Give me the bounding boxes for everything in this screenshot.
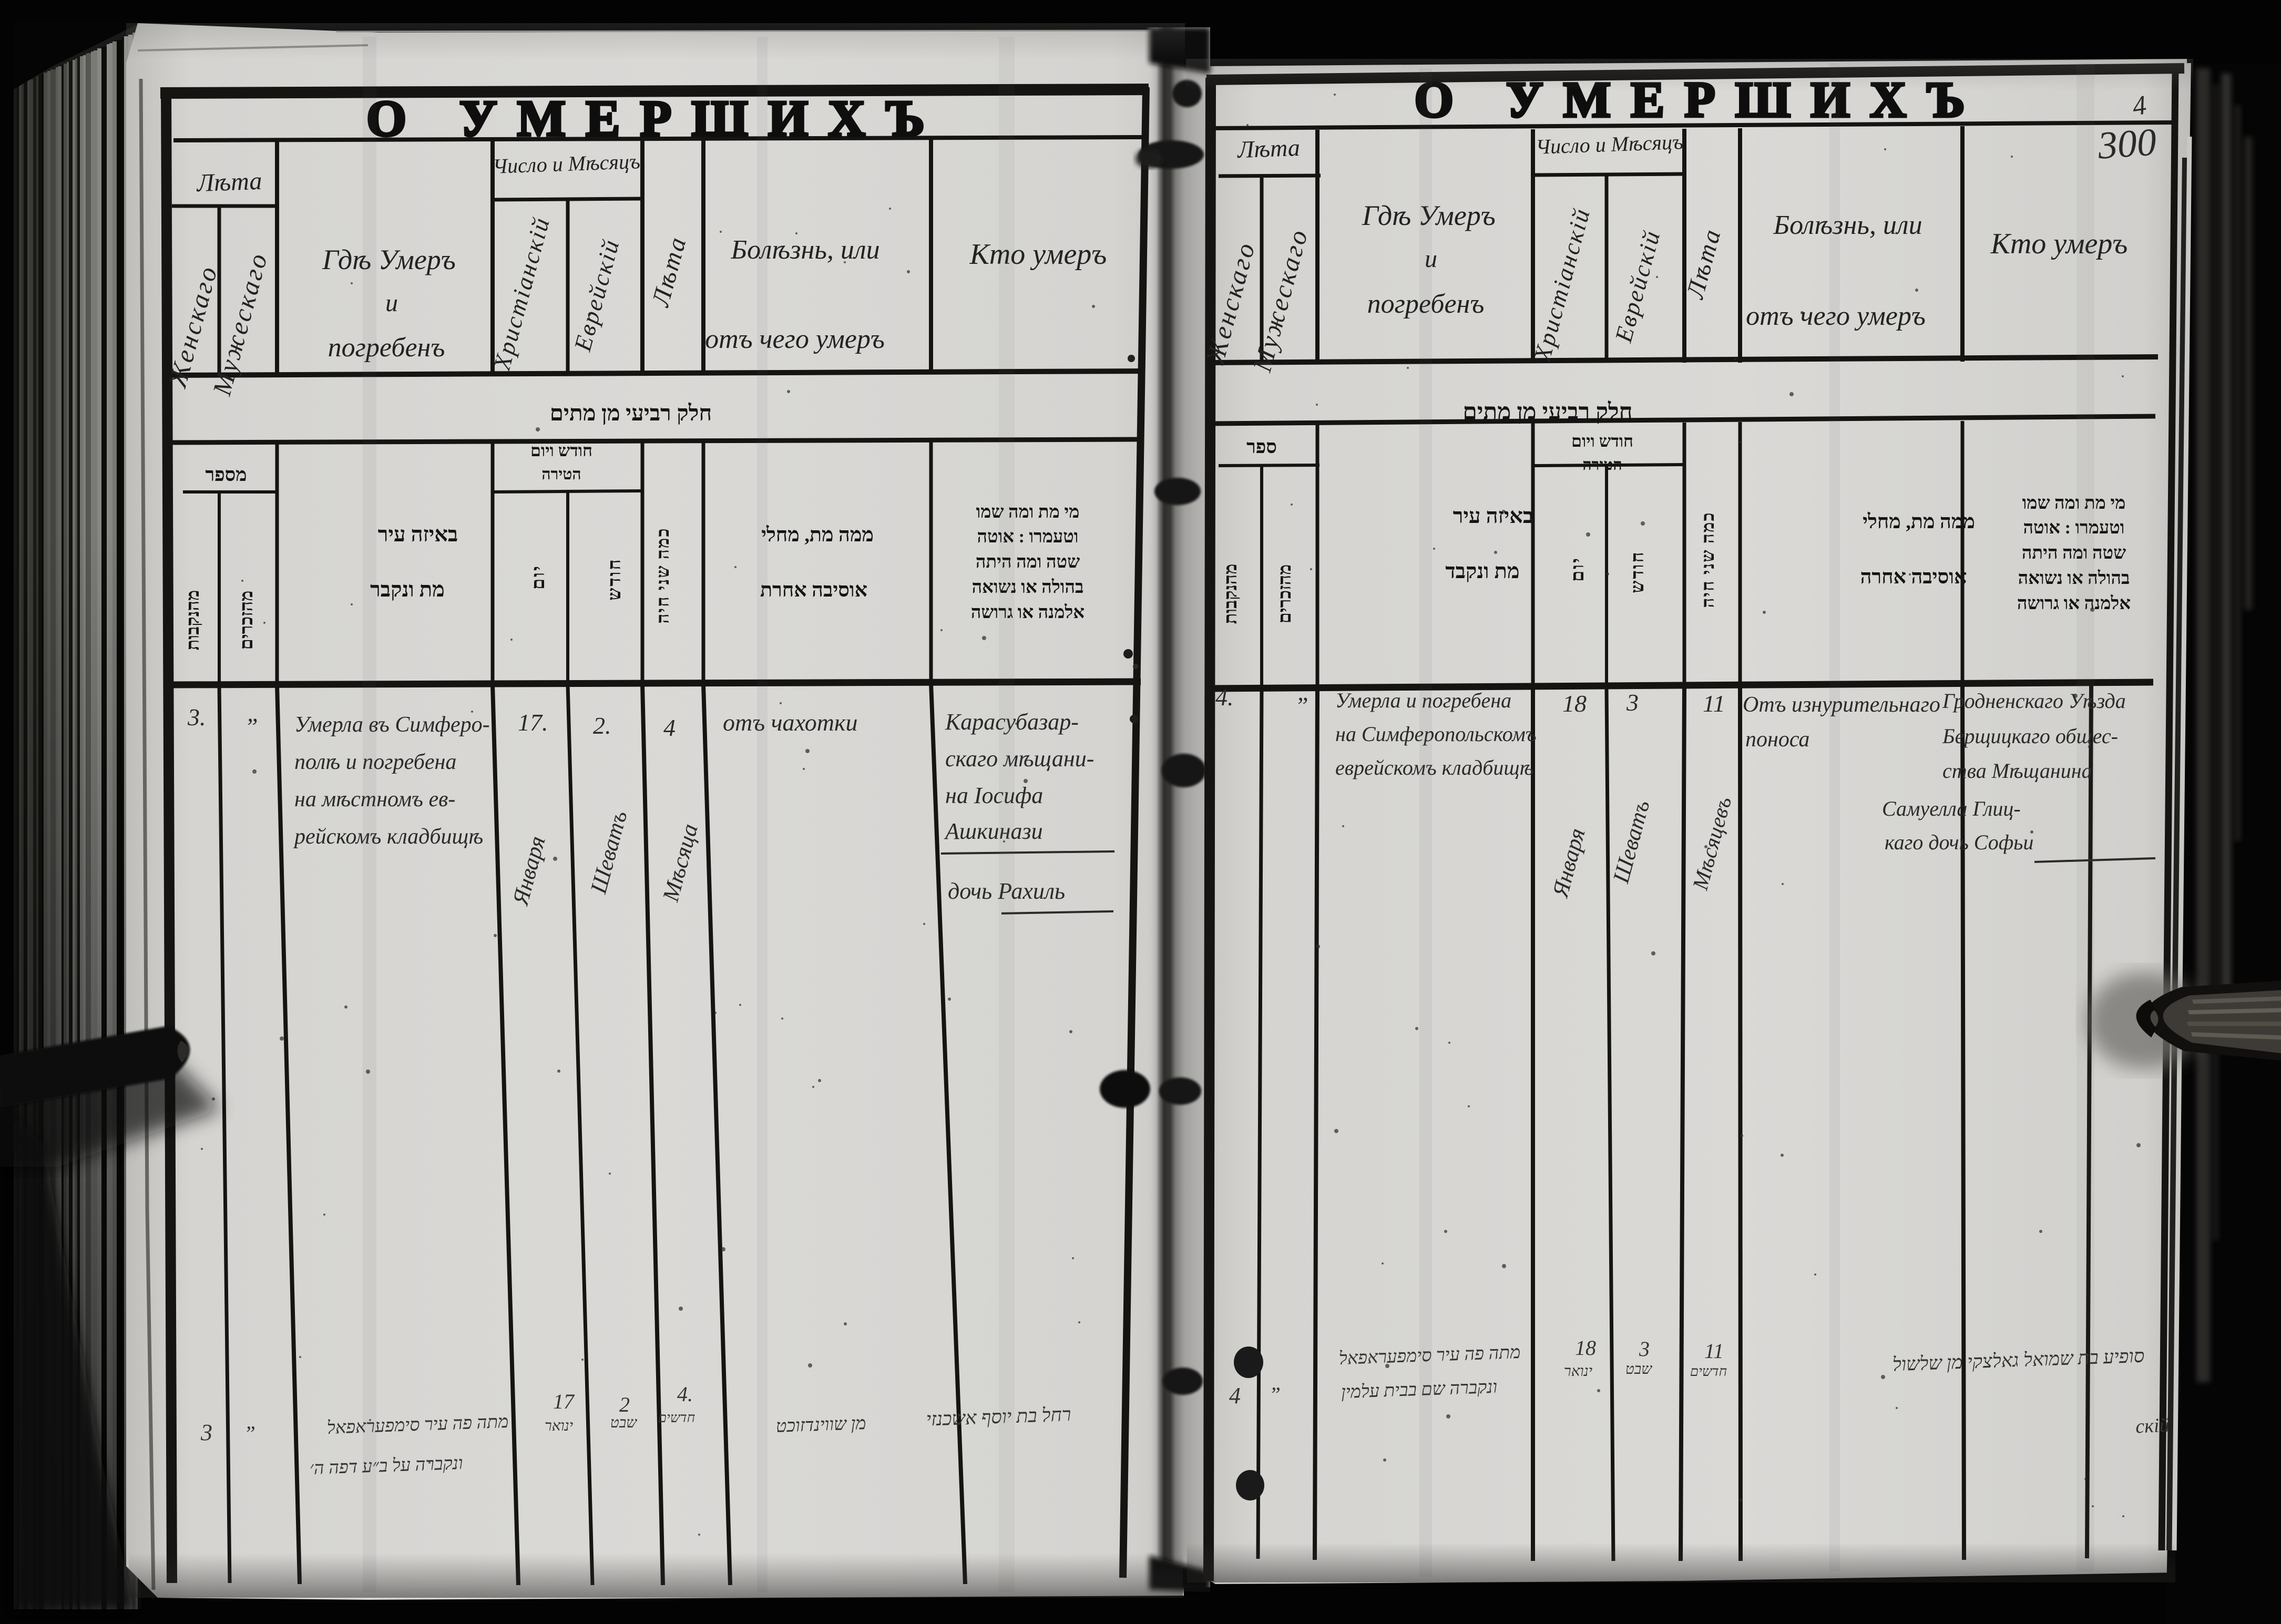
svg-text:еврейскомъ кладбищѣ: еврейскомъ кладбищѣ bbox=[1335, 756, 1533, 779]
svg-text:חלק רביעי מן מתים: חלק רביעי מן מתים bbox=[1462, 399, 1632, 425]
svg-text:בהולה או נשואה: בהולה או נשואה bbox=[972, 578, 1084, 597]
svg-text:17.: 17. bbox=[518, 709, 548, 736]
svg-text:שטה ומה היתה: שטה ומה היתה bbox=[976, 552, 1080, 572]
svg-text:חודש ויום: חודש ויום bbox=[530, 441, 592, 460]
svg-text:поноса: поноса bbox=[1745, 727, 1809, 752]
svg-text:חודש ויום: חודש ויום bbox=[1571, 431, 1633, 450]
svg-text:3: 3 bbox=[1639, 1337, 1650, 1361]
svg-text:ינואר: ינואר bbox=[545, 1418, 573, 1434]
svg-text:ינואר: ינואר bbox=[1564, 1363, 1592, 1380]
svg-text:4: 4 bbox=[663, 714, 676, 741]
svg-text:Кто умеръ: Кто умеръ bbox=[1990, 228, 2128, 260]
svg-text:Лѣта: Лѣта bbox=[1236, 134, 1300, 163]
svg-text:מת ונקבד: מת ונקבד bbox=[1445, 559, 1519, 583]
svg-text:ממה מת, מחלי: ממה מת, מחלי bbox=[761, 524, 874, 546]
svg-text:חודש: חודש bbox=[1628, 550, 1648, 593]
svg-text:Отъ изнурительнаго: Отъ изнурительнаго bbox=[1743, 693, 1940, 717]
svg-text:יום: יום bbox=[1568, 557, 1588, 582]
svg-text:שטה ומה היתה: שטה ומה היתה bbox=[2022, 543, 2126, 563]
svg-text:каго дочь Софьи: каго дочь Софьи bbox=[1885, 830, 2033, 854]
svg-text:חדשים: חדשים bbox=[1690, 1364, 1727, 1379]
svg-text:חדשים: חדשים bbox=[658, 1410, 695, 1425]
svg-text:ספר: ספר bbox=[1246, 436, 1277, 457]
svg-text:3: 3 bbox=[1626, 689, 1639, 716]
svg-text:מן שווינדזוכט: מן שווינדזוכט bbox=[775, 1414, 866, 1436]
svg-text:אוסיבה אחרה: אוסיבה אחרה bbox=[1860, 566, 1967, 588]
svg-text:הטירה: הטירה bbox=[541, 466, 581, 483]
svg-text:מת ונקבר: מת ונקבר bbox=[370, 578, 445, 601]
svg-text:מהזכרים: מהזכרים bbox=[237, 591, 257, 650]
svg-text:2.: 2. bbox=[593, 712, 611, 739]
svg-text:מספר: מספר bbox=[205, 464, 247, 485]
svg-text:скаго мѣщани-: скаго мѣщани- bbox=[945, 746, 1094, 772]
svg-text:на Іосифа: на Іосифа bbox=[945, 783, 1043, 808]
svg-text:„: „ bbox=[1297, 679, 1311, 705]
svg-text:Самуелла Глиц-: Самуелла Глиц- bbox=[1882, 797, 2021, 820]
svg-text:וטעמרו : אוטה: וטעמרו : אוטה bbox=[977, 527, 1079, 547]
svg-text:ממה מת, מחלי: ממה מת, מחלי bbox=[1863, 511, 1975, 533]
svg-text:אלמנה או גרושה: אלמנה או גרושה bbox=[2017, 594, 2131, 613]
svg-text:חודש: חודש bbox=[605, 558, 625, 600]
svg-text:отъ чего умеръ: отъ чего умеръ bbox=[705, 324, 885, 354]
svg-text:4.: 4. bbox=[1215, 684, 1234, 711]
svg-text:3.: 3. bbox=[187, 704, 206, 731]
svg-text:Ашкинази: Ашкинази bbox=[944, 818, 1043, 844]
svg-text:שבט: שבט bbox=[1625, 1361, 1652, 1378]
svg-text:יום: יום bbox=[529, 564, 548, 590]
svg-text:מהנקבות: מהנקבות bbox=[1221, 564, 1241, 624]
svg-text:4: 4 bbox=[1229, 1383, 1241, 1409]
svg-text:הטירה: הטירה bbox=[1582, 456, 1622, 474]
svg-text:כמה שני חיה: כמה שני חיה bbox=[654, 527, 673, 623]
svg-text:на Симферопольскомъ: на Симферопольскомъ bbox=[1335, 722, 1537, 746]
svg-text:באיזה עיר: באיזה עיר bbox=[1453, 504, 1533, 528]
svg-text:חלק רביעי מן מתים: חלק רביעי מן מתים bbox=[550, 402, 712, 426]
svg-text:„: „ bbox=[247, 700, 261, 726]
svg-text:Болѣзнь, или: Болѣзнь, или bbox=[1773, 210, 1922, 240]
svg-text:погребенъ: погребенъ bbox=[328, 333, 445, 363]
svg-text:Лѣта: Лѣта bbox=[196, 167, 263, 197]
svg-text:וטעמרו : אוטה: וטעמרו : אוטה bbox=[2023, 518, 2125, 538]
svg-text:отъ чахотки: отъ чахотки bbox=[723, 709, 858, 736]
svg-text:ства Мѣщанина: ства Мѣщанина bbox=[1942, 759, 2092, 783]
svg-text:18: 18 bbox=[1562, 690, 1587, 717]
svg-text:2: 2 bbox=[619, 1393, 630, 1416]
svg-text:Кто умеръ: Кто умеръ bbox=[969, 238, 1107, 271]
svg-text:Гдѣ Умеръ: Гдѣ Умеръ bbox=[322, 244, 456, 275]
svg-text:אלמנה או גרושה: אלמנה או גרושה bbox=[971, 603, 1085, 622]
svg-text:מהזכרים: מהזכרים bbox=[1275, 564, 1295, 624]
svg-text:3: 3 bbox=[200, 1420, 212, 1445]
svg-text:בהולה או נשואה: בהולה או נשואה bbox=[2018, 569, 2130, 588]
svg-text:באיזה עיר: באיזה עיר bbox=[378, 522, 458, 546]
svg-text:מי מת ומה שמו: מי מת ומה שמו bbox=[2022, 494, 2126, 513]
svg-text:שבט: שבט bbox=[610, 1415, 637, 1431]
svg-text:11: 11 bbox=[1704, 1339, 1724, 1363]
svg-text:рейскомъ кладбищѣ: рейскомъ кладбищѣ bbox=[293, 825, 483, 849]
svg-text:Гродненскаго Уѣзда: Гродненскаго Уѣзда bbox=[1942, 689, 2126, 713]
svg-text:и: и bbox=[385, 289, 398, 317]
svg-text:18: 18 bbox=[1575, 1336, 1596, 1360]
svg-text:4.: 4. bbox=[677, 1382, 693, 1406]
svg-text:Умерла въ Симферо-: Умерла въ Симферо- bbox=[294, 713, 490, 737]
svg-text:„: „ bbox=[1271, 1371, 1283, 1394]
svg-text:אוסיבה אחרת: אוסיבה אחרת bbox=[760, 579, 867, 601]
svg-text:О УМЕРШИХЪ: О УМЕРШИХЪ bbox=[366, 90, 945, 147]
svg-text:„: „ bbox=[246, 1410, 258, 1433]
svg-text:מי מת ומה שמו: מי מת ומה שמו bbox=[976, 502, 1080, 522]
svg-text:כמה שני חיה: כמה שני חיה bbox=[1699, 511, 1718, 608]
svg-text:Болѣзнь, или: Болѣзнь, или bbox=[730, 235, 879, 265]
svg-text:скій: скій bbox=[2135, 1414, 2170, 1437]
svg-text:300: 300 bbox=[2096, 120, 2157, 168]
svg-text:מהנקבות: מהנקבות bbox=[183, 590, 203, 651]
svg-text:11: 11 bbox=[1703, 690, 1725, 717]
svg-text:17: 17 bbox=[553, 1390, 575, 1413]
